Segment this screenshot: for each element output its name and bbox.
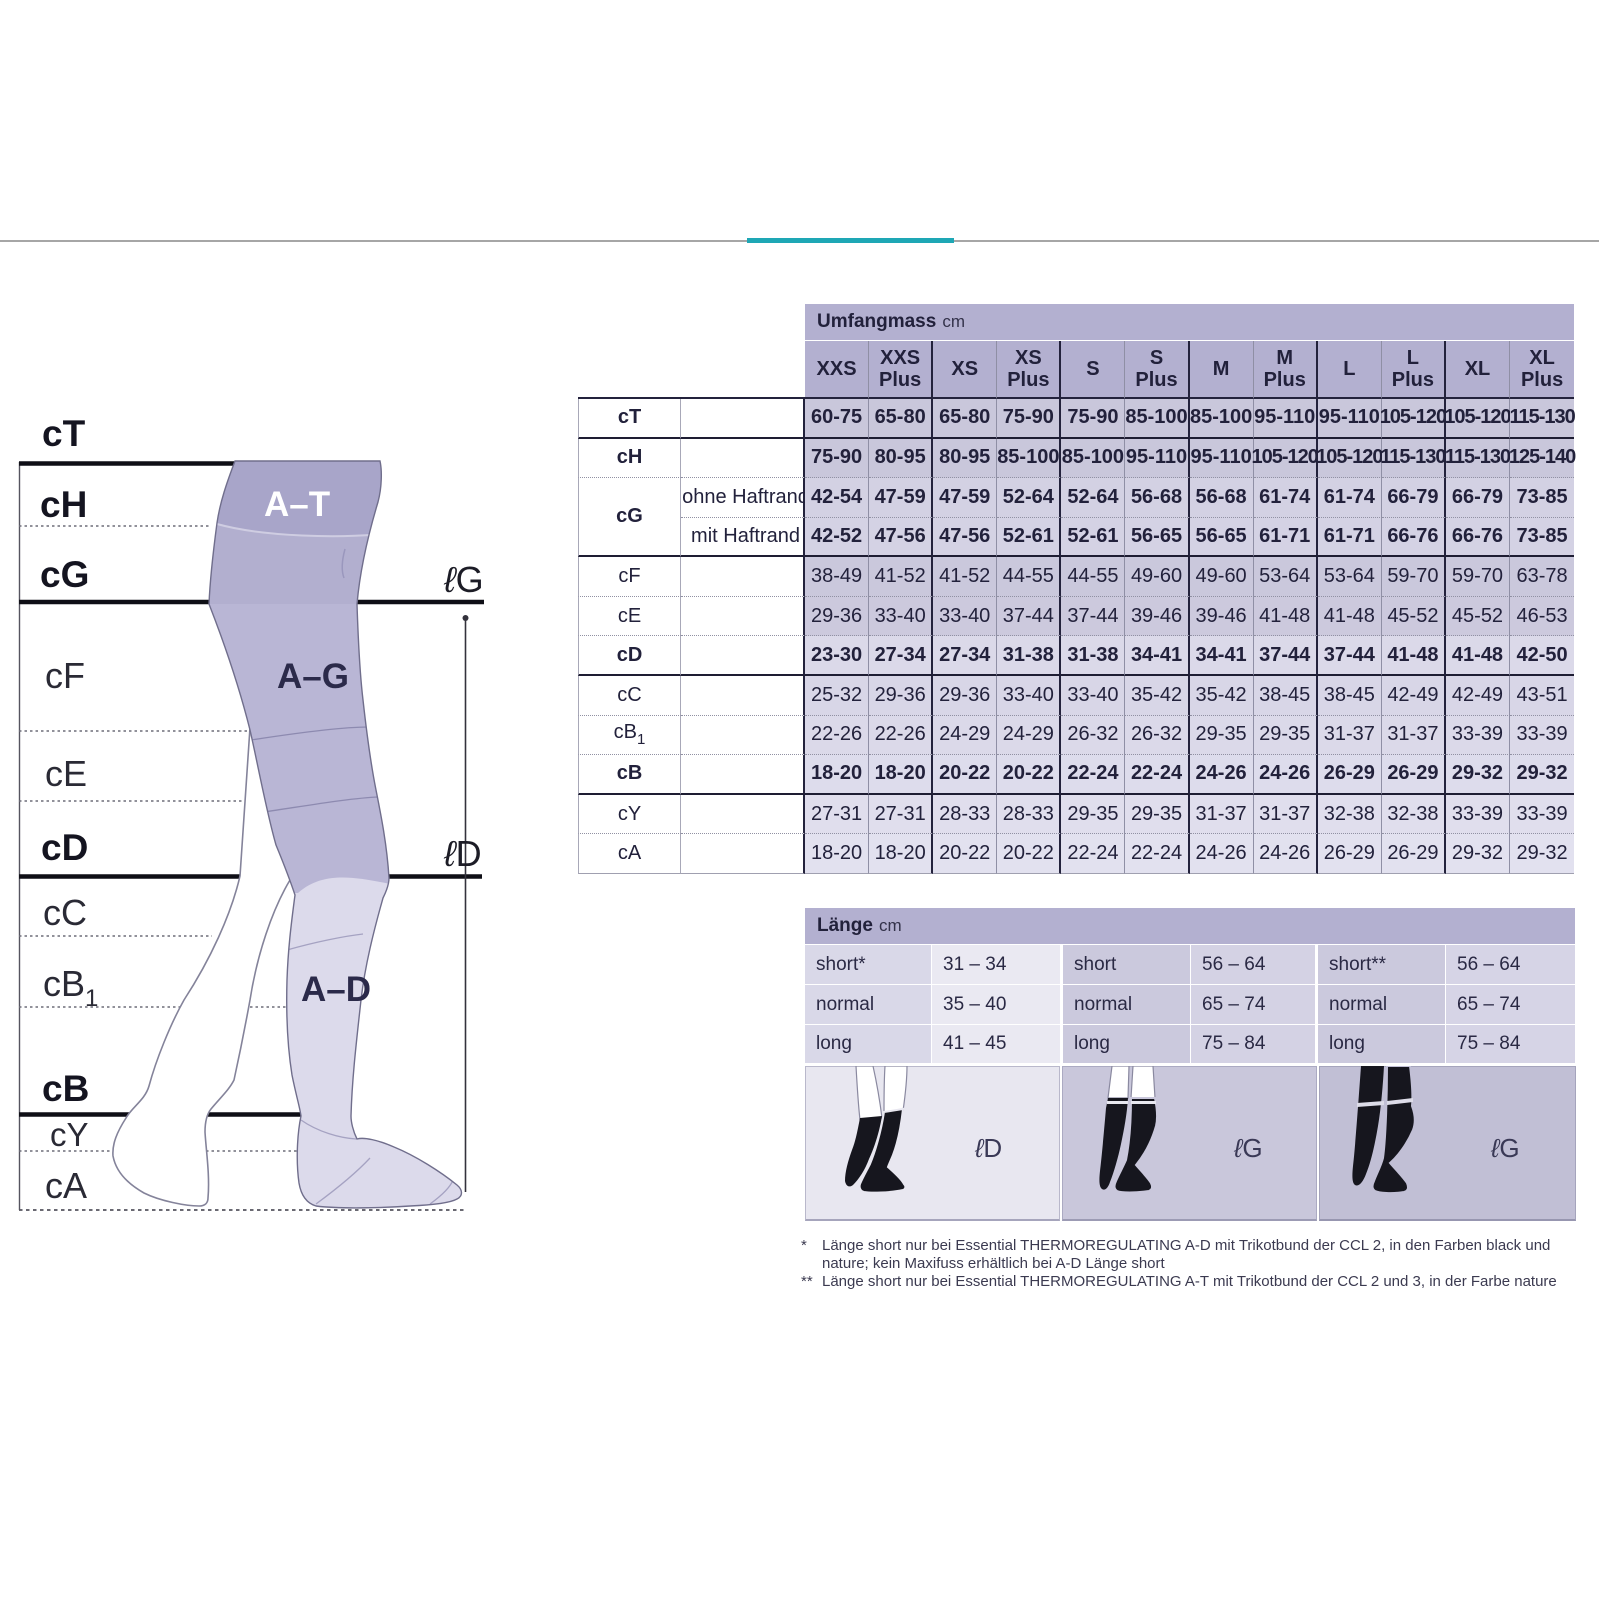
svg-text:ℓG: ℓG (1490, 1133, 1520, 1163)
svg-text:ℓG: ℓG (1233, 1133, 1263, 1163)
svg-text:cF: cF (45, 655, 85, 696)
svg-text:A–T: A–T (264, 485, 330, 524)
svg-text:cG: cG (40, 554, 89, 595)
svg-text:A–G: A–G (277, 657, 349, 696)
svg-text:cH: cH (40, 484, 87, 525)
svg-text:cD: cD (41, 827, 88, 868)
svg-text:cC: cC (43, 892, 87, 933)
svg-text:ℓG: ℓG (443, 559, 484, 600)
svg-text:ℓD: ℓD (974, 1133, 1002, 1163)
svg-text:cY: cY (50, 1116, 89, 1153)
svg-text:ℓD: ℓD (443, 833, 482, 874)
svg-text:cT: cT (42, 413, 86, 454)
svg-text:cB: cB (42, 1068, 89, 1109)
svg-text:cE: cE (45, 753, 87, 794)
svg-text:cA: cA (45, 1165, 87, 1206)
svg-text:A–D: A–D (301, 970, 371, 1009)
svg-text:cB1: cB1 (43, 963, 98, 1012)
